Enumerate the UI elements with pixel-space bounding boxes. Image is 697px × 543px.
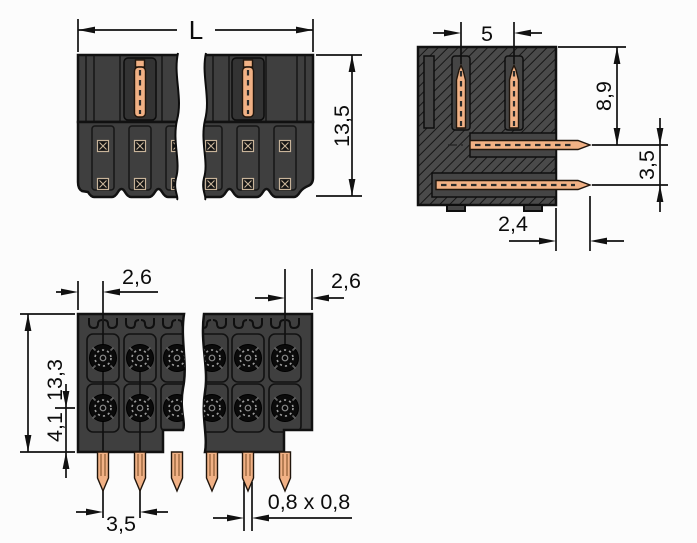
solder-contact [98,141,109,152]
dim-label-front-width: L [189,15,203,45]
dim-label-side-pin-offset: 2,4 [498,212,528,236]
dim-front-height: 13,5 [316,55,362,196]
solder-contact [135,141,146,152]
terminal-contact [235,345,262,372]
solder-pin [98,452,109,491]
solder-pin [172,452,183,491]
dim-bottom-pin-size: 0,8 x 0,8 [213,482,352,531]
terminal-contact [272,395,299,422]
solder-pin [280,452,291,491]
solder-contact [243,141,254,152]
solder-contact [206,179,217,190]
terminal-contact [90,345,117,372]
solder-pin [207,452,218,491]
dim-bottom-left-margin: 2,6 [56,265,158,310]
terminal-contact [199,345,226,372]
dim-side-row-pitch: 3,5 [592,118,668,212]
dim-side-pin-depth: 8,9 [558,47,668,145]
drawing-svg: L 13,5 5 [0,0,697,543]
solder-contact [243,179,254,190]
dim-front-width: L [78,15,313,52]
terminal-contact [127,345,154,372]
bottom-view: 2,6 2,6 13,3 4,1 3,5 [20,265,361,536]
technical-drawing: L 13,5 5 [0,0,697,543]
terminal-contact [199,395,226,422]
dim-label-bottom-pin-size: 0,8 x 0,8 [268,490,351,514]
terminal-contact [235,395,262,422]
terminal-contact [90,395,117,422]
solder-contact [206,141,217,152]
solder-contact [280,141,291,152]
dim-label-bottom-pitch: 3,5 [106,512,136,536]
terminal-contact [164,395,191,422]
dim-label-bottom-row-offset: 4,1 [43,412,67,442]
solder-contact [98,179,109,190]
dim-bottom-pitch: 3,5 [76,509,168,536]
terminal-contact [127,395,154,422]
dim-label-front-height: 13,5 [330,105,354,147]
solder-pin [135,452,146,491]
dim-label-bottom-right-margin: 2,6 [331,269,361,293]
dim-label-bottom-left-margin: 2,6 [122,265,152,289]
solder-contact [135,179,146,190]
dim-label-side-pin-pitch: 5 [481,22,493,46]
dim-label-side-pin-depth: 8,9 [592,81,616,111]
terminal-contact [272,345,299,372]
terminal-contact [164,345,191,372]
side-view: 5 8,9 3,5 2,4 [418,22,668,251]
dim-bottom-right-margin: 2,6 [255,269,361,310]
solder-contact [280,179,291,190]
front-view: L 13,5 [78,15,362,201]
dim-label-side-row-pitch: 3,5 [635,150,659,180]
